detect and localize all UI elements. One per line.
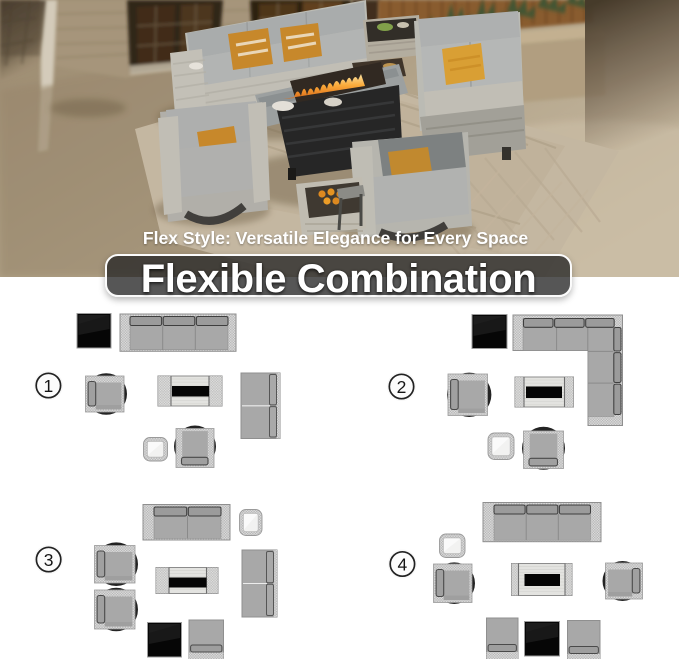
svg-text:3: 3 <box>44 550 54 570</box>
svg-text:1: 1 <box>44 376 54 396</box>
svg-text:2: 2 <box>397 377 407 397</box>
svg-text:4: 4 <box>398 554 408 574</box>
